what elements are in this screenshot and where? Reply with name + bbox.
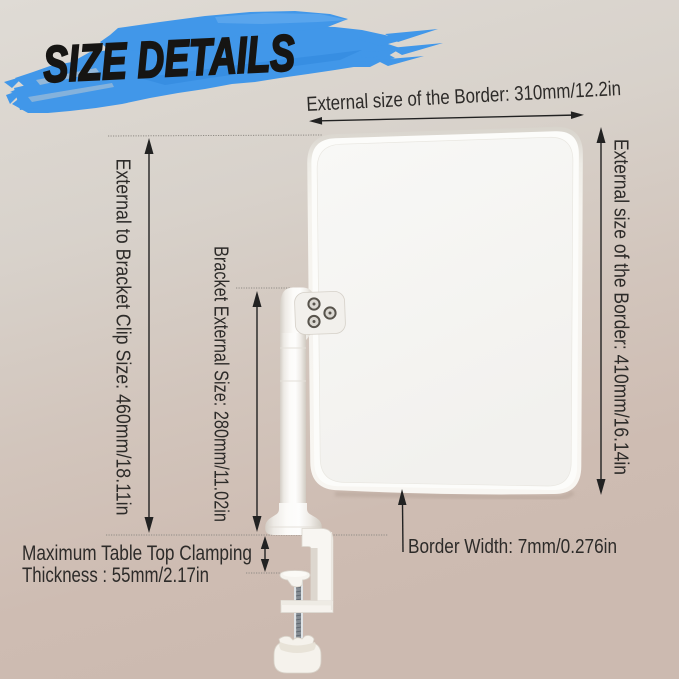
svg-text:External size of the Border: 4: External size of the Border: 410mm/16.14…: [610, 139, 633, 475]
svg-text:Border Width: 7mm/0.276in: Border Width: 7mm/0.276in: [408, 536, 617, 558]
svg-text:Maximum Table Top Clamping: Maximum Table Top Clamping: [22, 542, 252, 565]
svg-text:Thickness : 55mm/2.17in: Thickness : 55mm/2.17in: [22, 564, 209, 587]
svg-text:Bracket External Size: 280mm/1: Bracket External Size: 280mm/11.02in: [210, 246, 233, 522]
svg-text:SIZE DETAILS: SIZE DETAILS: [42, 24, 296, 93]
svg-text:External to Bracket Clip Size:: External to Bracket Clip Size: 460mm/18.…: [112, 159, 135, 516]
